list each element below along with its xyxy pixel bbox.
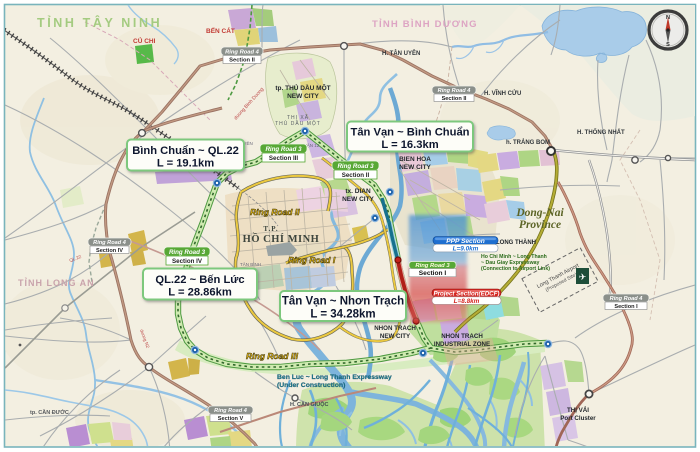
svg-text:tp. CẦN ĐƯỚC: tp. CẦN ĐƯỚC [30,408,69,416]
svg-text:✈: ✈ [579,272,587,282]
svg-text:THỦ DẦU MỘT: THỦ DẦU MỘT [275,120,321,127]
svg-text:Ring Road 4: Ring Road 4 [225,50,260,56]
svg-text:L = 19.1km: L = 19.1km [157,158,214,170]
svg-text:Section II: Section II [342,172,370,179]
svg-text:NHON TRACH: NHON TRACH [374,325,416,332]
svg-text:h. TRẢNG BOM: h. TRẢNG BOM [506,139,550,146]
svg-text:Bình Chuẩn ~ QL.22: Bình Chuẩn ~ QL.22 [132,145,239,157]
svg-text:Ring Road 3: Ring Road 3 [265,146,302,153]
svg-text:L = 28.86km: L = 28.86km [168,287,232,299]
svg-text:T.P.: T.P. [263,225,278,233]
svg-text:TÂN BÌNH: TÂN BÌNH [240,261,261,267]
svg-text:tx. DIAN: tx. DIAN [345,188,371,195]
svg-text:BIEN HOA: BIEN HOA [399,156,431,163]
svg-text:L = 16.3km: L = 16.3km [381,139,438,151]
svg-text:Section II: Section II [229,58,255,64]
svg-text:Dong-Nai: Dong-Nai [515,207,564,219]
svg-text:TỈNH BÌNH DƯƠNG: TỈNH BÌNH DƯƠNG [372,18,478,30]
svg-text:NHON TRACH: NHON TRACH [441,333,483,340]
svg-text:TỈNH TÂY NINH: TỈNH TÂY NINH [37,15,162,30]
svg-text:Ring Road 4: Ring Road 4 [438,88,472,94]
svg-text:CỦ CHI: CỦ CHI [133,36,156,45]
svg-text:NEW CITY: NEW CITY [380,333,411,340]
svg-text:Ring Road 4: Ring Road 4 [610,296,644,302]
svg-text:L=9.0km: L=9.0km [453,245,479,252]
svg-text:PPP Section: PPP Section [446,238,485,245]
svg-text:Ring Road 3: Ring Road 3 [169,249,206,256]
svg-text:H. THỐNG NHẤT: H. THỐNG NHẤT [577,129,625,136]
svg-text:THỊ VẢI: THỊ VẢI [567,407,589,414]
svg-text:LONG THÀNH: LONG THÀNH [496,239,536,246]
svg-text:Ring Road 3: Ring Road 3 [337,163,374,170]
svg-text:(Connection to Airport Link): (Connection to Airport Link) [481,266,550,272]
svg-text:Section I: Section I [614,304,638,310]
svg-text:Ring Road I: Ring Road I [288,255,336,265]
svg-text:Port Cluster: Port Cluster [560,415,596,422]
svg-text:Ring Road 4: Ring Road 4 [93,240,127,246]
svg-text:TỈNH LONG AN: TỈNH LONG AN [18,277,95,288]
svg-text:Ring Road 3: Ring Road 3 [415,263,450,269]
svg-text:Ring Road II: Ring Road II [250,207,300,217]
svg-text:Section I: Section I [419,270,447,277]
svg-text:H. VĨNH CỬU: H. VĨNH CỬU [484,90,521,97]
svg-text:QL.22 ~ Bến Lức: QL.22 ~ Bến Lức [155,274,244,286]
svg-text:L = 34.28km: L = 34.28km [310,309,375,321]
svg-text:THỊ XÃ: THỊ XÃ [287,114,309,121]
svg-text:Tân Vạn ~ Bình Chuẩn: Tân Vạn ~ Bình Chuẩn [350,127,469,139]
svg-text:Ring Road III: Ring Road III [246,351,299,361]
svg-text:HỒ CHÍ MINH: HỒ CHÍ MINH [243,232,320,245]
svg-text:Section IV: Section IV [172,258,203,265]
svg-text:Section II: Section II [442,96,467,102]
svg-text:H. CẦN GIUỘC: H. CẦN GIUỘC [290,400,329,408]
svg-text:Section III: Section III [269,155,299,162]
svg-text:Province: Province [519,219,561,231]
svg-text:(Under Construction): (Under Construction) [277,382,345,389]
svg-text:H. TÂN UYÊN: H. TÂN UYÊN [382,49,420,57]
svg-text:INDUSTRIAL ZONE: INDUSTRIAL ZONE [434,341,490,348]
svg-text:Ring Road 4: Ring Road 4 [214,408,248,414]
svg-text:Section IV: Section IV [96,248,123,254]
svg-text:Ben Luc ~ Long Thanh Expresswa: Ben Luc ~ Long Thanh Expressway [277,374,392,381]
svg-text:Project Section(EDCF): Project Section(EDCF) [433,290,499,297]
svg-text:Section V: Section V [218,416,244,422]
svg-text:NEW CITY: NEW CITY [399,164,431,171]
svg-text:S: S [666,42,670,48]
svg-text:Tân Vạn ~ Nhơn Trạch: Tân Vạn ~ Nhơn Trạch [282,296,404,308]
svg-text:NEW CITY: NEW CITY [342,196,374,203]
svg-text:NEW CITY: NEW CITY [287,93,319,100]
svg-text:L=8.8km: L=8.8km [454,298,480,305]
